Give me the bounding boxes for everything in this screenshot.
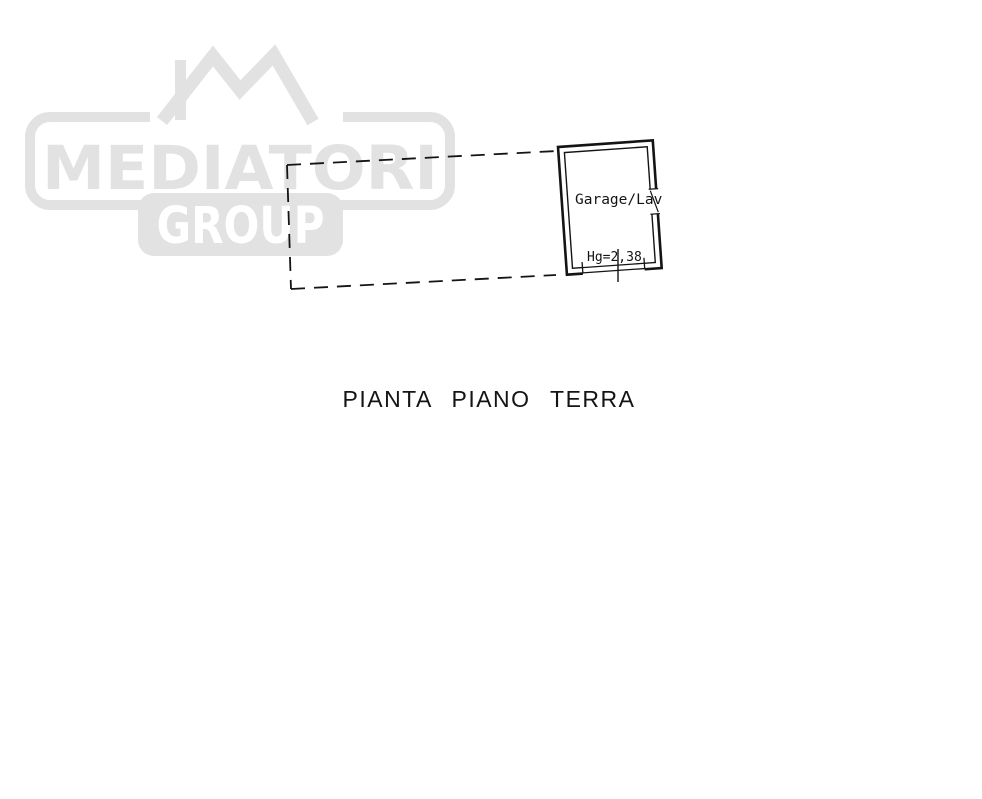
garage-door-jamb-left (582, 262, 583, 273)
garage-door-jamb-right (644, 258, 645, 269)
watermark-brand-bottom: GROUP (157, 197, 325, 256)
floor-plan-canvas: MEDIATORI GROUP (0, 0, 982, 799)
watermark-logo: MEDIATORI GROUP (30, 55, 450, 256)
dashed-boundary-bottom (291, 275, 556, 289)
plan-title: PIANTA PIANO TERRA (343, 386, 636, 412)
garage-window-jamb-top (649, 189, 658, 190)
garage-window-jamb-bottom (650, 214, 659, 215)
room-label: Garage/Lav (575, 192, 663, 208)
height-label: Hg=2,38 (587, 250, 642, 265)
floor-plan-page: MEDIATORI GROUP (0, 0, 982, 799)
